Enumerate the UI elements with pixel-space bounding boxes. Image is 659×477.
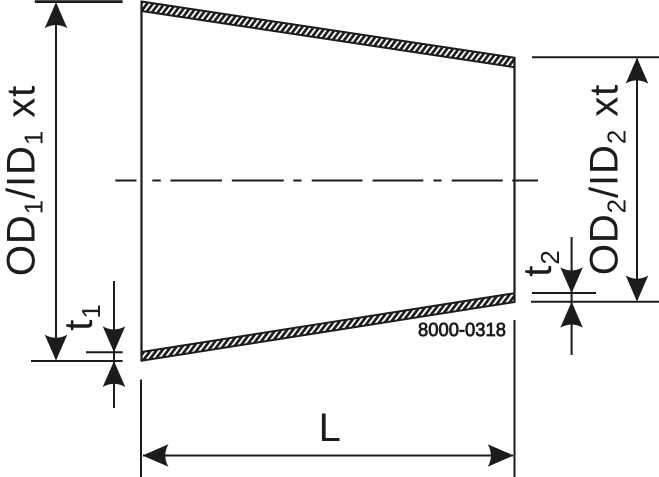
svg-text:8000-0318: 8000-0318 — [418, 320, 506, 341]
svg-text:OD2/ID2 xt: OD2/ID2 xt — [583, 84, 632, 275]
svg-text:L: L — [319, 406, 341, 450]
svg-text:OD1/ID1 xt: OD1/ID1 xt — [0, 85, 49, 276]
